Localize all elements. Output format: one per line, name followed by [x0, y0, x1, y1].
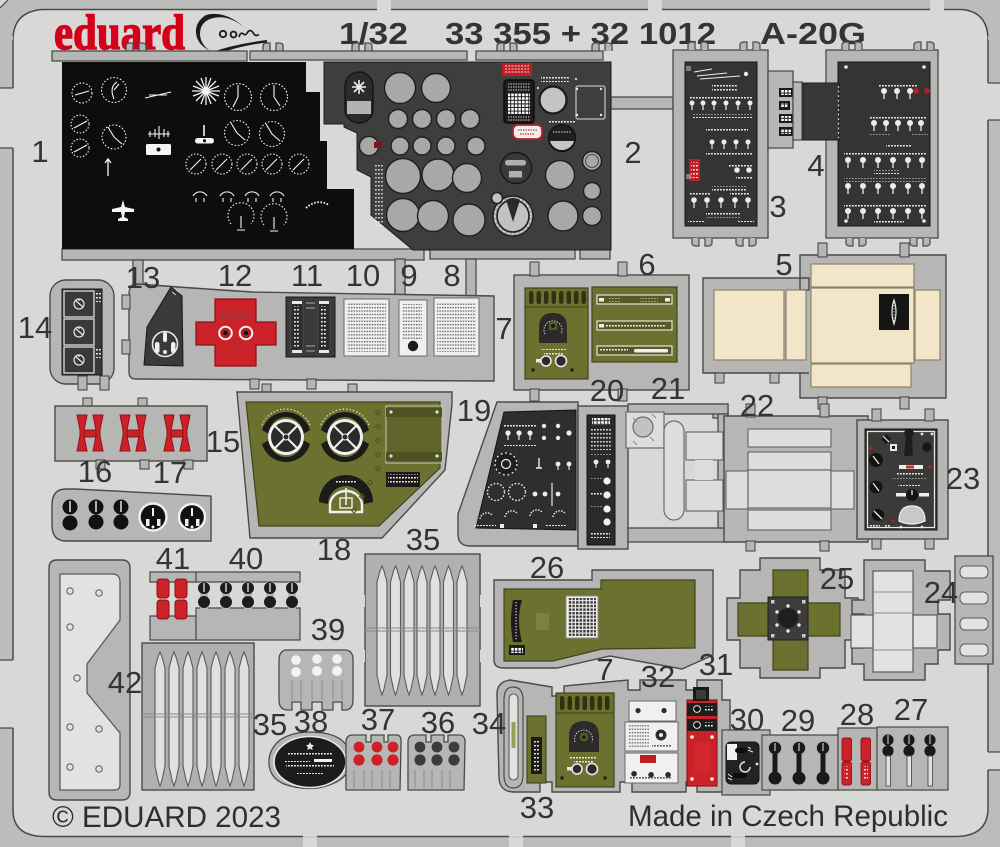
svg-text:Made in Czech Republic: Made in Czech Republic [628, 800, 948, 833]
svg-text:20: 20 [590, 373, 624, 408]
svg-text:42: 42 [108, 665, 142, 700]
svg-text:26: 26 [530, 550, 564, 585]
svg-text:12: 12 [218, 258, 252, 293]
svg-text:10: 10 [346, 258, 380, 293]
svg-text:1: 1 [31, 134, 48, 169]
svg-text:11: 11 [291, 258, 323, 293]
svg-text:21: 21 [651, 371, 685, 406]
svg-text:© EDUARD 2023: © EDUARD 2023 [52, 801, 281, 834]
svg-text:17: 17 [153, 455, 187, 490]
svg-text:19: 19 [457, 393, 491, 428]
svg-text:41: 41 [156, 541, 190, 576]
svg-text:27: 27 [894, 692, 928, 727]
svg-text:29: 29 [781, 703, 815, 738]
svg-text:36: 36 [421, 705, 455, 740]
svg-text:3: 3 [769, 189, 786, 224]
svg-text:9: 9 [400, 258, 417, 293]
svg-text:2: 2 [624, 135, 641, 170]
svg-text:7: 7 [596, 652, 613, 687]
svg-text:25: 25 [820, 561, 854, 596]
svg-text:40: 40 [229, 541, 263, 576]
svg-text:1/32: 1/32 [339, 16, 408, 51]
svg-text:6: 6 [638, 247, 655, 282]
svg-text:38: 38 [294, 704, 328, 739]
svg-text:39: 39 [311, 612, 345, 647]
svg-text:33 355 + 32 1012: 33 355 + 32 1012 [445, 16, 716, 51]
svg-text:31: 31 [699, 647, 733, 682]
svg-text:4: 4 [807, 148, 824, 183]
svg-text:32: 32 [641, 659, 675, 694]
svg-text:A-20G: A-20G [760, 16, 866, 51]
svg-text:13: 13 [126, 260, 160, 295]
svg-text:14: 14 [18, 310, 52, 345]
svg-text:23: 23 [946, 461, 980, 496]
svg-text:15: 15 [206, 424, 240, 459]
svg-text:37: 37 [361, 702, 395, 737]
svg-text:34: 34 [472, 706, 506, 741]
svg-text:35: 35 [253, 707, 287, 742]
svg-text:16: 16 [78, 454, 112, 489]
svg-text:33: 33 [520, 790, 554, 825]
svg-text:5: 5 [775, 247, 792, 282]
svg-text:22: 22 [740, 388, 774, 423]
svg-text:30: 30 [730, 702, 764, 737]
svg-text:35: 35 [406, 522, 440, 557]
svg-text:8: 8 [443, 258, 460, 293]
svg-text:18: 18 [317, 532, 351, 567]
svg-text:24: 24 [924, 575, 958, 610]
svg-text:7: 7 [495, 311, 512, 346]
svg-text:28: 28 [840, 697, 874, 732]
